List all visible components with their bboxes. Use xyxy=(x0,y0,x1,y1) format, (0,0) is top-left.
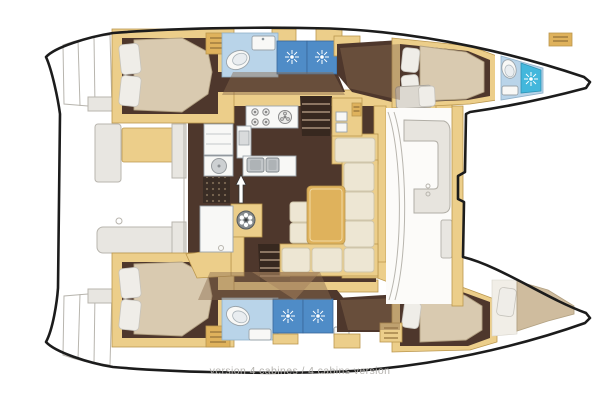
forward-cockpit xyxy=(386,106,463,306)
starboard-boarding-step xyxy=(88,289,114,303)
caption: version 4 cabines / 4 cabins version xyxy=(210,365,391,377)
bath-cabinet xyxy=(273,334,298,344)
sofa-cushion xyxy=(344,163,374,191)
dinette-table xyxy=(307,186,345,244)
sofa-cushion xyxy=(282,248,310,272)
pillow xyxy=(118,299,141,331)
bench-cushion xyxy=(441,220,452,258)
vent-icon xyxy=(352,103,361,116)
port-stairs xyxy=(300,96,332,136)
floor-plan: version 4 cabines / 4 cabins version xyxy=(0,0,600,400)
shower-drain-icon xyxy=(281,309,295,323)
shower-drain-icon xyxy=(285,50,299,64)
sofa-cushion xyxy=(344,192,374,220)
forward-lounge-seat xyxy=(395,85,435,109)
forepeak-bed xyxy=(517,281,574,331)
pillow xyxy=(118,43,141,75)
cockpit-seat-back xyxy=(95,124,121,182)
sofa-cushion xyxy=(312,248,342,272)
pillow xyxy=(418,86,435,107)
pillow xyxy=(496,287,517,317)
port-aft-cabin xyxy=(112,29,234,123)
nav-drawer xyxy=(336,123,347,132)
port-bathrooms xyxy=(222,29,342,77)
hatch-wheel-icon xyxy=(231,204,262,237)
sink-icon xyxy=(249,329,271,340)
shower-drain-icon xyxy=(524,72,538,86)
cockpit-table xyxy=(97,227,177,253)
stern-transoms xyxy=(63,35,114,365)
shower-drain-icon xyxy=(315,50,329,64)
tall-cabinet xyxy=(200,206,233,252)
pillow xyxy=(401,301,421,329)
fridge xyxy=(204,124,233,155)
cockpit-bench-cushion-port xyxy=(122,128,178,162)
sink-icon xyxy=(502,86,518,95)
partition xyxy=(495,50,500,104)
pillow xyxy=(118,75,141,107)
oven-icon xyxy=(239,131,249,145)
forward-crossbeam xyxy=(452,106,463,306)
windlass-icon xyxy=(549,33,572,46)
pillow xyxy=(401,47,420,73)
cockpit-hatch-handle xyxy=(116,218,122,224)
shower-drain-icon xyxy=(311,309,325,323)
catamaran-floor-plan-svg: version 4 cabines / 4 cabins version xyxy=(0,0,600,400)
nav-station xyxy=(332,98,362,136)
bath-cabinet xyxy=(334,334,360,348)
sofa-cushion xyxy=(344,248,374,272)
port-boarding-step xyxy=(88,97,114,111)
pillow xyxy=(118,267,141,299)
sofa-cushion xyxy=(344,221,374,247)
floor-grate xyxy=(203,177,230,203)
nav-drawer xyxy=(336,112,347,121)
sofa-cushion xyxy=(335,138,375,162)
galley-sink-icon xyxy=(247,158,279,172)
